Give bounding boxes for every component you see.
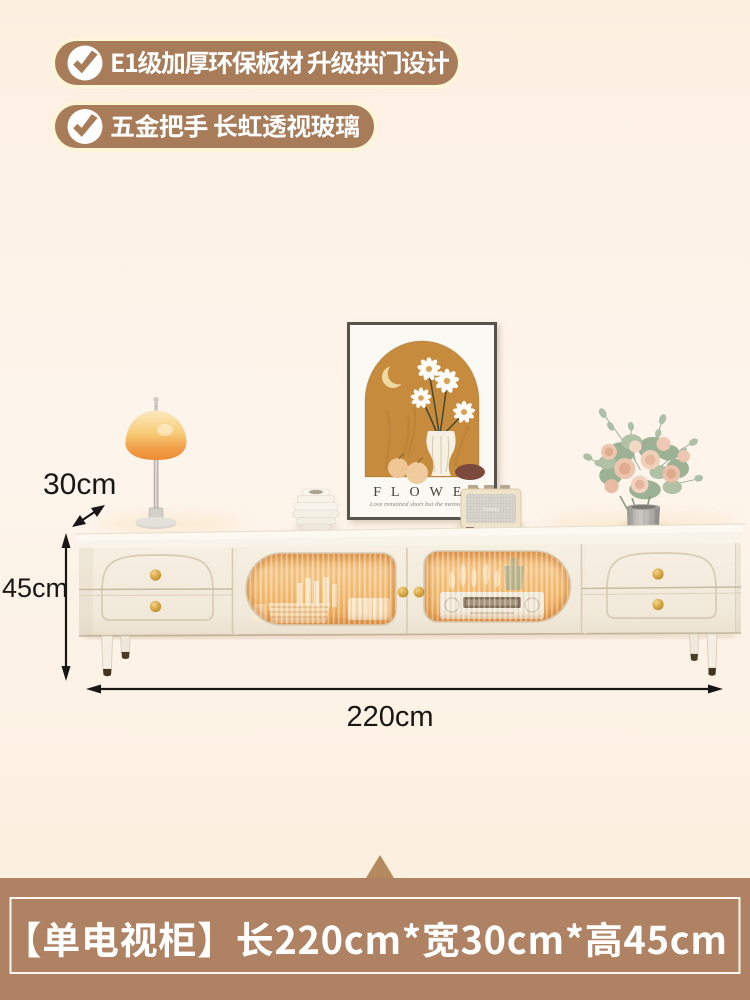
- svg-text:30cm: 30cm: [43, 468, 116, 501]
- svg-text:Sansui: Sansui: [482, 506, 500, 513]
- svg-text:220cm: 220cm: [346, 701, 433, 733]
- svg-text:45cm: 45cm: [2, 573, 68, 603]
